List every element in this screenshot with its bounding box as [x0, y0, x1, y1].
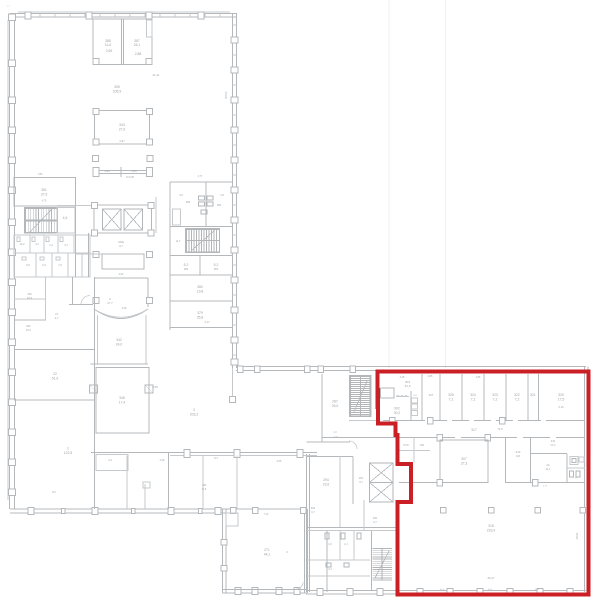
svg-text:381: 381 [214, 267, 219, 271]
svg-text:361: 361 [41, 188, 47, 192]
svg-text:302: 302 [394, 407, 400, 411]
svg-text:ПУИ: ПУИ [404, 444, 409, 447]
svg-text:2,88: 2,88 [135, 52, 142, 56]
svg-text:2,90: 2,90 [104, 169, 110, 173]
svg-text:17,1: 17,1 [550, 443, 556, 447]
svg-text:345: 345 [119, 396, 125, 400]
svg-text:35,8: 35,8 [197, 316, 204, 320]
svg-text:294: 294 [323, 478, 329, 482]
svg-text:16,2: 16,2 [26, 328, 32, 332]
svg-text:74,8: 74,8 [497, 427, 503, 431]
svg-text:233,9: 233,9 [487, 529, 496, 533]
svg-text:26,0: 26,0 [332, 404, 339, 408]
svg-text:3: 3 [193, 408, 195, 412]
svg-text:27,3: 27,3 [461, 462, 468, 466]
svg-text:7,86: 7,86 [38, 173, 43, 176]
svg-text:8,2: 8,2 [52, 490, 56, 494]
svg-text:4,75: 4,75 [42, 200, 47, 203]
svg-text:122,8: 122,8 [64, 451, 73, 455]
svg-text:h=3,35: h=3,35 [126, 175, 135, 179]
svg-text:203,2: 203,2 [190, 413, 199, 417]
svg-text:7,2: 7,2 [471, 398, 476, 402]
svg-text:22: 22 [53, 372, 57, 376]
svg-text:7,12: 7,12 [264, 513, 269, 516]
svg-text:384: 384 [217, 203, 222, 207]
svg-text:4,28: 4,28 [160, 459, 165, 462]
svg-text:363: 363 [26, 324, 31, 328]
svg-text:9,7: 9,7 [359, 480, 363, 484]
svg-text:23,08: 23,08 [224, 92, 228, 99]
svg-text:379: 379 [197, 311, 203, 315]
svg-text:5,19: 5,19 [558, 405, 564, 409]
svg-text:349: 349 [27, 292, 32, 296]
svg-text:10,9: 10,9 [27, 296, 33, 300]
svg-text:4,97: 4,97 [119, 139, 125, 143]
svg-text:7,0: 7,0 [58, 263, 62, 267]
svg-text:27,9: 27,9 [119, 128, 126, 132]
svg-text:9,7: 9,7 [311, 511, 315, 514]
svg-text:383: 383 [186, 200, 191, 204]
svg-text:5,2: 5,2 [214, 263, 219, 267]
svg-text:27,7: 27,7 [107, 301, 113, 305]
svg-text:4,48: 4,48 [400, 376, 405, 379]
svg-text:325: 325 [448, 393, 454, 397]
svg-text:1,4: 1,4 [49, 243, 53, 247]
svg-text:321: 321 [530, 393, 536, 397]
svg-text:4,1: 4,1 [35, 242, 39, 246]
svg-text:4,56: 4,56 [277, 460, 282, 463]
svg-text:117: 117 [214, 457, 218, 460]
svg-text:324: 324 [470, 393, 476, 397]
svg-text:2,1: 2,1 [344, 543, 348, 546]
svg-text:9,8: 9,8 [516, 454, 520, 458]
svg-text:4,7: 4,7 [64, 243, 68, 247]
svg-text:7,2: 7,2 [515, 398, 520, 402]
svg-text:205,9: 205,9 [113, 90, 122, 94]
svg-text:26,1: 26,1 [134, 43, 141, 47]
svg-text:31,9: 31,9 [405, 384, 411, 388]
svg-text:305: 305 [420, 444, 425, 447]
svg-text:37,9: 37,9 [41, 193, 48, 197]
svg-text:44,1: 44,1 [264, 553, 271, 557]
svg-text:2,3: 2,3 [42, 263, 46, 267]
svg-text:297: 297 [359, 476, 364, 480]
svg-text:343: 343 [119, 123, 125, 127]
svg-text:9,7: 9,7 [119, 244, 123, 248]
svg-text:4,6: 4,6 [63, 216, 68, 220]
svg-text:15,87: 15,87 [575, 533, 579, 540]
svg-text:11,1: 11,1 [546, 467, 551, 471]
svg-text:11,7: 11,7 [176, 239, 181, 243]
svg-text:19,8: 19,8 [197, 290, 204, 294]
svg-text:22,6: 22,6 [323, 483, 330, 487]
svg-text:1,8: 1,8 [220, 193, 224, 197]
svg-text:287: 287 [332, 400, 338, 404]
svg-text:3,1: 3,1 [328, 568, 332, 571]
svg-text:17,4: 17,4 [119, 401, 126, 405]
svg-text:1: 1 [67, 447, 69, 451]
svg-text:2,17: 2,17 [204, 320, 210, 324]
svg-text:4,88: 4,88 [428, 375, 433, 378]
svg-text:4,7: 4,7 [55, 316, 59, 320]
svg-text:51,9: 51,9 [52, 377, 59, 381]
svg-text:307: 307 [461, 457, 467, 461]
svg-text:2,69: 2,69 [106, 49, 113, 53]
svg-text:4,77: 4,77 [198, 175, 203, 178]
svg-text:305: 305 [114, 85, 120, 89]
svg-text:2A: 2A [546, 463, 549, 467]
svg-text:271: 271 [264, 548, 270, 552]
svg-text:5,6: 5,6 [26, 263, 30, 267]
svg-text:2,89: 2,89 [131, 169, 137, 173]
svg-text:318: 318 [488, 524, 494, 528]
svg-text:342: 342 [116, 338, 122, 342]
svg-text:30,2: 30,2 [394, 411, 401, 415]
svg-text:9,7: 9,7 [373, 521, 377, 524]
svg-text:343a: 343a [118, 240, 124, 244]
svg-text:24,0: 24,0 [116, 343, 123, 347]
svg-text:303: 303 [311, 507, 316, 510]
svg-text:29,47: 29,47 [488, 576, 495, 580]
svg-text:382: 382 [184, 267, 189, 271]
svg-text:322: 322 [514, 393, 520, 397]
svg-text:380: 380 [197, 285, 203, 289]
svg-text:10,2: 10,2 [19, 242, 25, 246]
svg-text:4,4: 4,4 [108, 458, 112, 462]
svg-text:11,6: 11,6 [105, 43, 111, 47]
svg-text:1,9: 1,9 [328, 543, 332, 546]
svg-text:4,38: 4,38 [122, 307, 127, 310]
svg-text:327: 327 [429, 393, 434, 397]
svg-text:7,2: 7,2 [493, 398, 498, 402]
svg-text:5,2: 5,2 [184, 263, 189, 267]
svg-text:4,62: 4,62 [119, 273, 124, 276]
svg-text:7,1: 7,1 [449, 398, 454, 402]
svg-text:317: 317 [471, 428, 477, 432]
svg-text:3,0: 3,0 [179, 193, 183, 197]
svg-text:320: 320 [558, 393, 564, 397]
svg-text:4,88: 4,88 [476, 376, 481, 379]
svg-text:300: 300 [373, 517, 378, 520]
svg-text:323: 323 [492, 393, 498, 397]
svg-text:17,5: 17,5 [558, 398, 565, 402]
svg-text:21,41: 21,41 [153, 73, 160, 77]
svg-text:3,68: 3,68 [152, 385, 158, 389]
